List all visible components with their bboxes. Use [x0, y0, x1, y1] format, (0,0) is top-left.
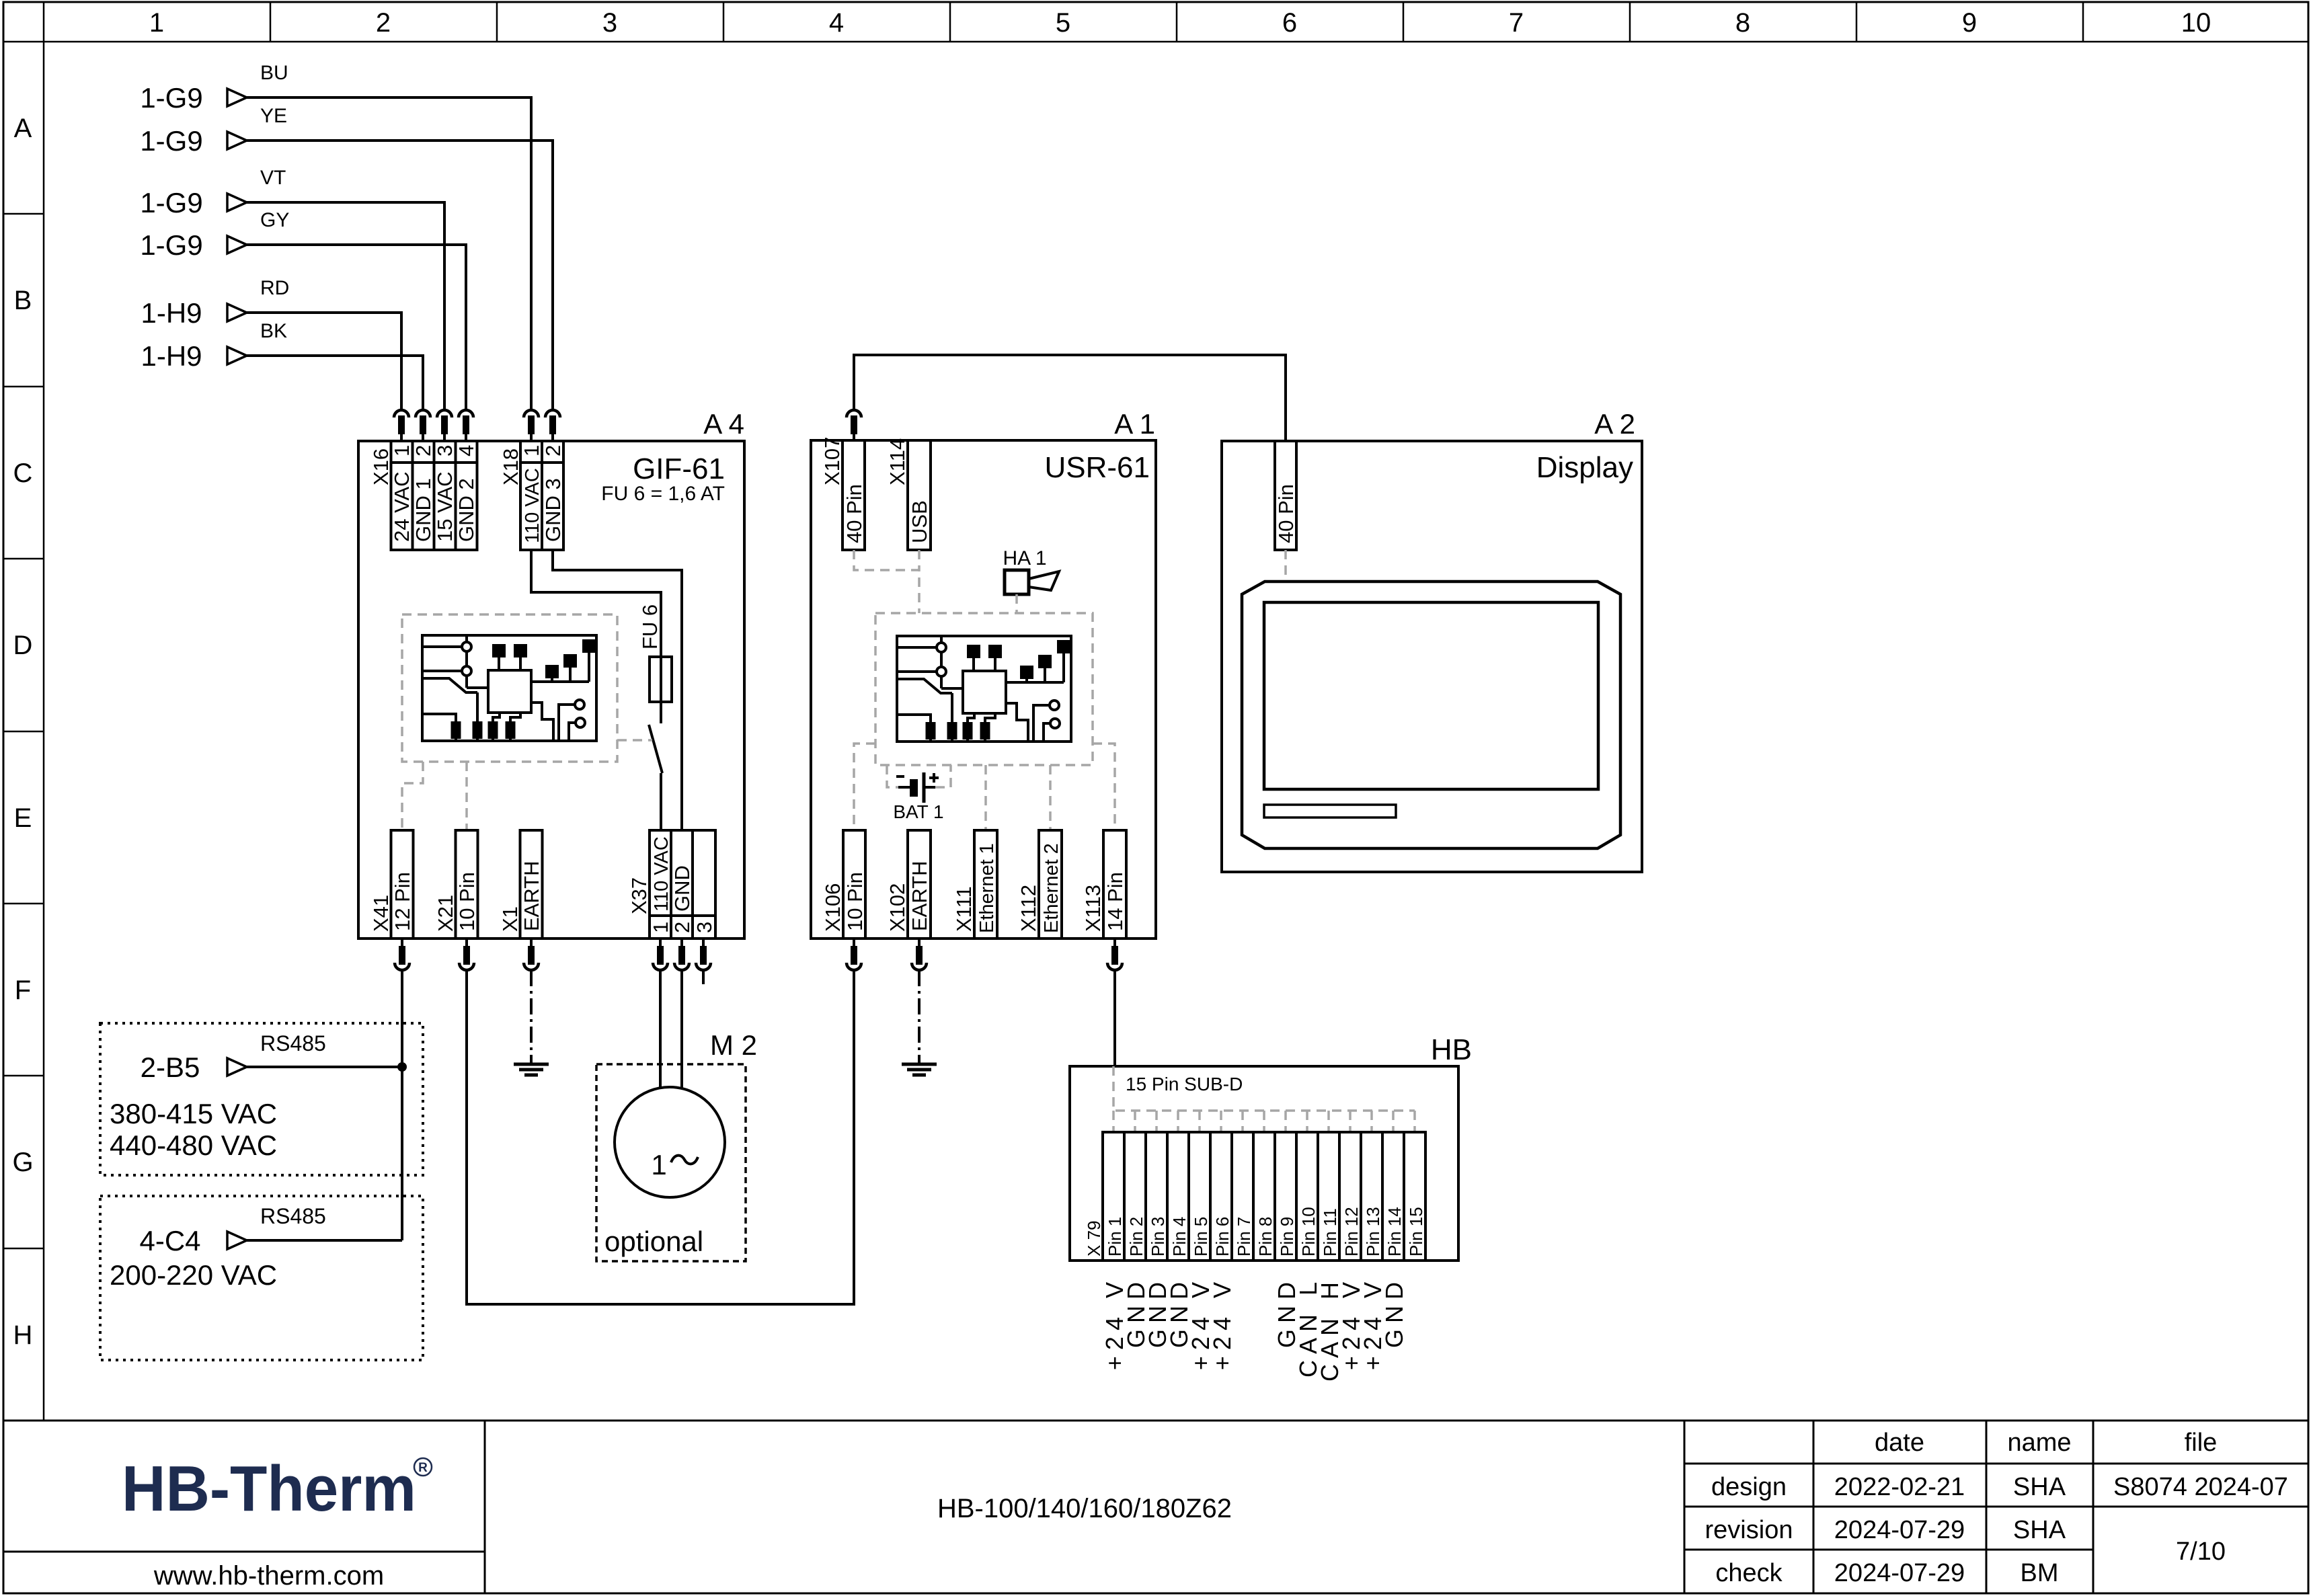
svg-text:1: 1	[390, 445, 414, 456]
svg-text:Pin 14: Pin 14	[1384, 1207, 1405, 1256]
svg-text:2: 2	[412, 445, 435, 456]
svg-text:H: H	[13, 1320, 33, 1350]
svg-text:40 Pin: 40 Pin	[843, 484, 866, 543]
svg-text:X111: X111	[952, 886, 976, 932]
svg-text:A 1: A 1	[1114, 408, 1155, 440]
svg-text:X113: X113	[1081, 885, 1105, 932]
svg-text:24 VAC: 24 VAC	[390, 471, 414, 542]
svg-text:HA 1: HA 1	[1003, 547, 1046, 569]
svg-text:revision: revision	[1705, 1516, 1793, 1544]
svg-text:VT: VT	[260, 167, 286, 189]
svg-text:X16: X16	[369, 448, 393, 485]
svg-text:X107: X107	[820, 437, 844, 485]
svg-text:+24 V: +24 V	[1208, 1276, 1236, 1370]
svg-text:design: design	[1711, 1473, 1787, 1501]
svg-text:X37: X37	[627, 877, 651, 914]
svg-text:A: A	[14, 114, 32, 143]
svg-text:1-G9: 1-G9	[140, 82, 202, 114]
svg-text:440-480 VAC: 440-480 VAC	[110, 1129, 277, 1161]
svg-text:Pin 7: Pin 7	[1234, 1217, 1254, 1256]
svg-text:10 Pin: 10 Pin	[455, 872, 479, 931]
svg-text:date: date	[1875, 1429, 1924, 1457]
svg-text:1-G9: 1-G9	[140, 125, 202, 157]
svg-text:1-H9: 1-H9	[141, 297, 202, 329]
svg-text:1: 1	[149, 8, 164, 38]
svg-text:name: name	[2007, 1429, 2071, 1457]
svg-text:5: 5	[1056, 8, 1070, 38]
svg-text:Pin 2: Pin 2	[1126, 1217, 1146, 1256]
svg-text:X106: X106	[821, 883, 845, 932]
svg-text:S8074 2024-07: S8074 2024-07	[2113, 1473, 2288, 1501]
svg-text:X1: X1	[498, 906, 522, 932]
svg-text:1-G9: 1-G9	[140, 229, 202, 261]
svg-text:Display: Display	[1536, 451, 1633, 484]
svg-text:G: G	[12, 1148, 33, 1177]
svg-text:7: 7	[1509, 8, 1524, 38]
svg-text:X21: X21	[434, 895, 457, 932]
svg-text:Pin 10: Pin 10	[1298, 1207, 1319, 1256]
svg-text:Pin 3: Pin 3	[1148, 1217, 1168, 1256]
svg-text:USB: USB	[908, 500, 931, 543]
svg-text:GY: GY	[260, 209, 289, 231]
svg-text:3: 3	[693, 922, 716, 933]
svg-text:GND: GND	[1380, 1276, 1408, 1348]
svg-text:Pin 9: Pin 9	[1277, 1217, 1297, 1256]
svg-text:RS485: RS485	[260, 1204, 326, 1228]
svg-text:GND 2: GND 2	[455, 478, 478, 542]
svg-text:1: 1	[649, 922, 672, 933]
svg-text:1-G9: 1-G9	[140, 187, 202, 218]
svg-text:Pin 4: Pin 4	[1169, 1217, 1189, 1256]
svg-text:2: 2	[541, 445, 565, 456]
svg-text:X18: X18	[499, 448, 522, 485]
svg-text:R: R	[418, 1461, 428, 1475]
svg-text:1: 1	[520, 445, 543, 456]
svg-text:BU: BU	[260, 62, 288, 84]
svg-text:M 2: M 2	[710, 1029, 757, 1061]
svg-text:1: 1	[651, 1149, 666, 1181]
svg-text:Pin 11: Pin 11	[1320, 1208, 1340, 1256]
svg-text:EARTH: EARTH	[520, 861, 543, 931]
svg-text:2024-07-29: 2024-07-29	[1834, 1516, 1965, 1544]
svg-text:2022-02-21: 2022-02-21	[1834, 1473, 1965, 1501]
svg-text:GND 1: GND 1	[412, 478, 435, 542]
svg-text:Ethernet 2: Ethernet 2	[1041, 843, 1062, 933]
svg-text:X102: X102	[886, 883, 909, 932]
svg-text:YE: YE	[260, 105, 287, 127]
svg-text:15 Pin SUB-D: 15 Pin SUB-D	[1126, 1074, 1243, 1094]
svg-text:380-415 VAC: 380-415 VAC	[110, 1098, 277, 1129]
svg-text:RS485: RS485	[260, 1031, 326, 1055]
svg-text:SHA: SHA	[2013, 1516, 2066, 1544]
svg-text:A 4: A 4	[703, 408, 744, 440]
svg-text:Pin 8: Pin 8	[1255, 1217, 1276, 1256]
svg-text:USR-61: USR-61	[1045, 451, 1150, 484]
svg-text:GND 3: GND 3	[541, 478, 565, 542]
svg-text:FU 6 = 1,6 AT: FU 6 = 1,6 AT	[601, 483, 725, 505]
svg-text:F: F	[15, 975, 31, 1005]
svg-text:3: 3	[602, 8, 617, 38]
svg-text:X41: X41	[369, 895, 393, 932]
svg-text:Pin 12: Pin 12	[1341, 1207, 1362, 1256]
svg-text:optional: optional	[604, 1226, 703, 1257]
svg-text:A 2: A 2	[1594, 408, 1635, 440]
svg-text:BAT 1: BAT 1	[893, 801, 943, 822]
svg-text:Ethernet 1: Ethernet 1	[976, 843, 998, 933]
svg-text:2: 2	[376, 8, 391, 38]
svg-text:6: 6	[1282, 8, 1297, 38]
svg-text:4: 4	[829, 8, 844, 38]
svg-text:D: D	[13, 631, 33, 660]
svg-text:2: 2	[670, 922, 694, 933]
svg-text:3: 3	[433, 445, 457, 456]
svg-text:EARTH: EARTH	[908, 861, 931, 931]
svg-text:check: check	[1715, 1559, 1783, 1587]
svg-text:X114: X114	[886, 438, 909, 485]
svg-text:HB-Therm: HB-Therm	[122, 1453, 416, 1525]
svg-text:www.hb-therm.com: www.hb-therm.com	[153, 1561, 384, 1591]
svg-text:2-B5: 2-B5	[141, 1051, 200, 1083]
svg-text:7/10: 7/10	[2176, 1538, 2226, 1566]
svg-text:BK: BK	[260, 320, 287, 342]
svg-text:10 Pin: 10 Pin	[843, 872, 867, 931]
svg-text:GIF-61: GIF-61	[633, 452, 725, 485]
svg-text:C: C	[13, 458, 33, 488]
svg-text:4-C4: 4-C4	[139, 1225, 200, 1256]
svg-text:15 VAC: 15 VAC	[433, 471, 457, 542]
svg-text:SHA: SHA	[2013, 1473, 2066, 1501]
svg-text:1-H9: 1-H9	[141, 340, 202, 372]
svg-text:RD: RD	[260, 277, 289, 299]
svg-text:HB: HB	[1431, 1033, 1472, 1066]
svg-text:B: B	[14, 286, 32, 315]
svg-text:X 79: X 79	[1084, 1221, 1104, 1257]
svg-text:FU 6: FU 6	[638, 604, 662, 649]
svg-text:Pin 13: Pin 13	[1363, 1207, 1383, 1256]
svg-text:200-220 VAC: 200-220 VAC	[110, 1259, 277, 1291]
svg-text:110 VAC: 110 VAC	[522, 468, 543, 543]
svg-text:110 VAC: 110 VAC	[651, 836, 672, 912]
svg-text:40 Pin: 40 Pin	[1274, 484, 1298, 543]
svg-text:Pin 15: Pin 15	[1406, 1207, 1426, 1256]
svg-text:14 Pin: 14 Pin	[1103, 872, 1127, 931]
svg-text:Pin 5: Pin 5	[1191, 1217, 1211, 1256]
svg-text:10: 10	[2181, 8, 2211, 38]
svg-text:2024-07-29: 2024-07-29	[1834, 1559, 1965, 1587]
svg-text:Pin 1: Pin 1	[1105, 1217, 1125, 1256]
svg-text:8: 8	[1735, 8, 1750, 38]
svg-text:GND: GND	[670, 865, 694, 912]
svg-text:BM: BM	[2021, 1559, 2059, 1587]
svg-text:Pin 6: Pin 6	[1212, 1217, 1232, 1256]
svg-text:12 Pin: 12 Pin	[391, 872, 414, 931]
svg-text:E: E	[14, 803, 32, 833]
svg-text:X112: X112	[1017, 885, 1040, 932]
svg-text:HB-100/140/160/180Z62: HB-100/140/160/180Z62	[937, 1494, 1232, 1523]
svg-text:file: file	[2185, 1429, 2218, 1457]
svg-text:9: 9	[1962, 8, 1977, 38]
svg-text:4: 4	[455, 445, 478, 456]
